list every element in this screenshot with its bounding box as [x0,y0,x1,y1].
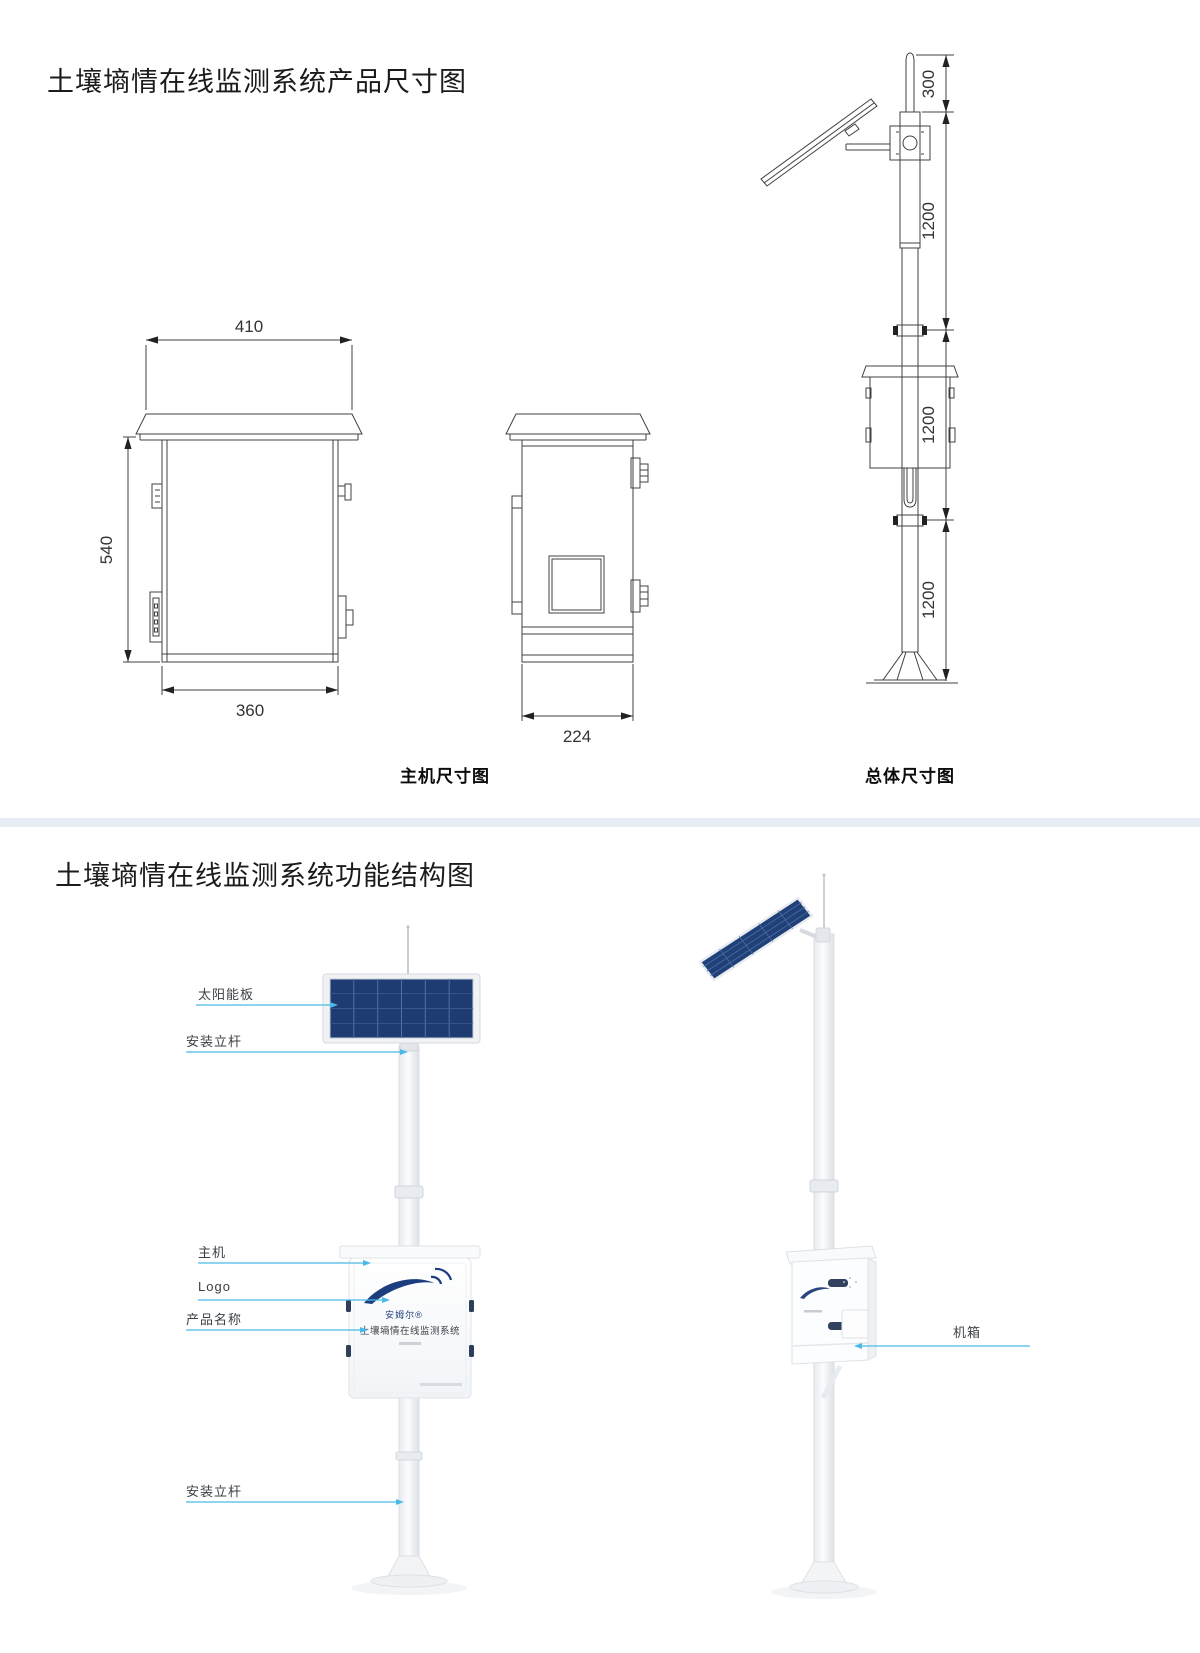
section-divider [0,818,1200,827]
station-render-front [323,925,480,1595]
callout-leader-lines [186,1002,1030,1505]
station-render-side [700,874,876,1600]
dim-overall-upper: 1200 [919,202,938,240]
solar-panel-side [700,898,812,980]
callout-product-name: 产品名称 [186,1309,242,1328]
callout-solar-panel: 太阳能板 [198,984,254,1003]
dim-side-depth: 224 [563,727,591,746]
callout-logo: Logo [198,1279,231,1294]
cabinet-brand-text: 安姆尔® [385,1309,423,1320]
solar-panel-front [323,974,480,1051]
caption-main-unit: 主机尺寸图 [360,762,530,787]
main-unit-cabinet-front [340,1246,480,1398]
callout-pole-lower: 安装立杆 [186,1481,242,1500]
side-view-drawing [506,414,650,721]
callout-cabinet: 机箱 [953,1322,981,1341]
dim-front-top-width: 410 [235,317,263,336]
dim-overall-middle: 1200 [919,406,938,444]
dimensions-section-title: 土壤墒情在线监测系统产品尺寸图 [47,60,467,99]
dim-overall-lower: 1200 [919,581,938,619]
caption-overall: 总体尺寸图 [825,762,995,787]
dim-overall-antenna: 300 [919,70,938,98]
callout-pole-upper: 安装立杆 [186,1031,242,1050]
structure-section-title: 土壤墒情在线监测系统功能结构图 [55,854,475,893]
dim-front-bottom-width: 360 [236,701,264,720]
callout-main-unit: 主机 [198,1242,226,1261]
cabinet-product-name-text: 土壤墒情在线监测系统 [360,1325,460,1337]
front-view-drawing [123,336,362,695]
dim-front-height: 540 [97,536,116,564]
